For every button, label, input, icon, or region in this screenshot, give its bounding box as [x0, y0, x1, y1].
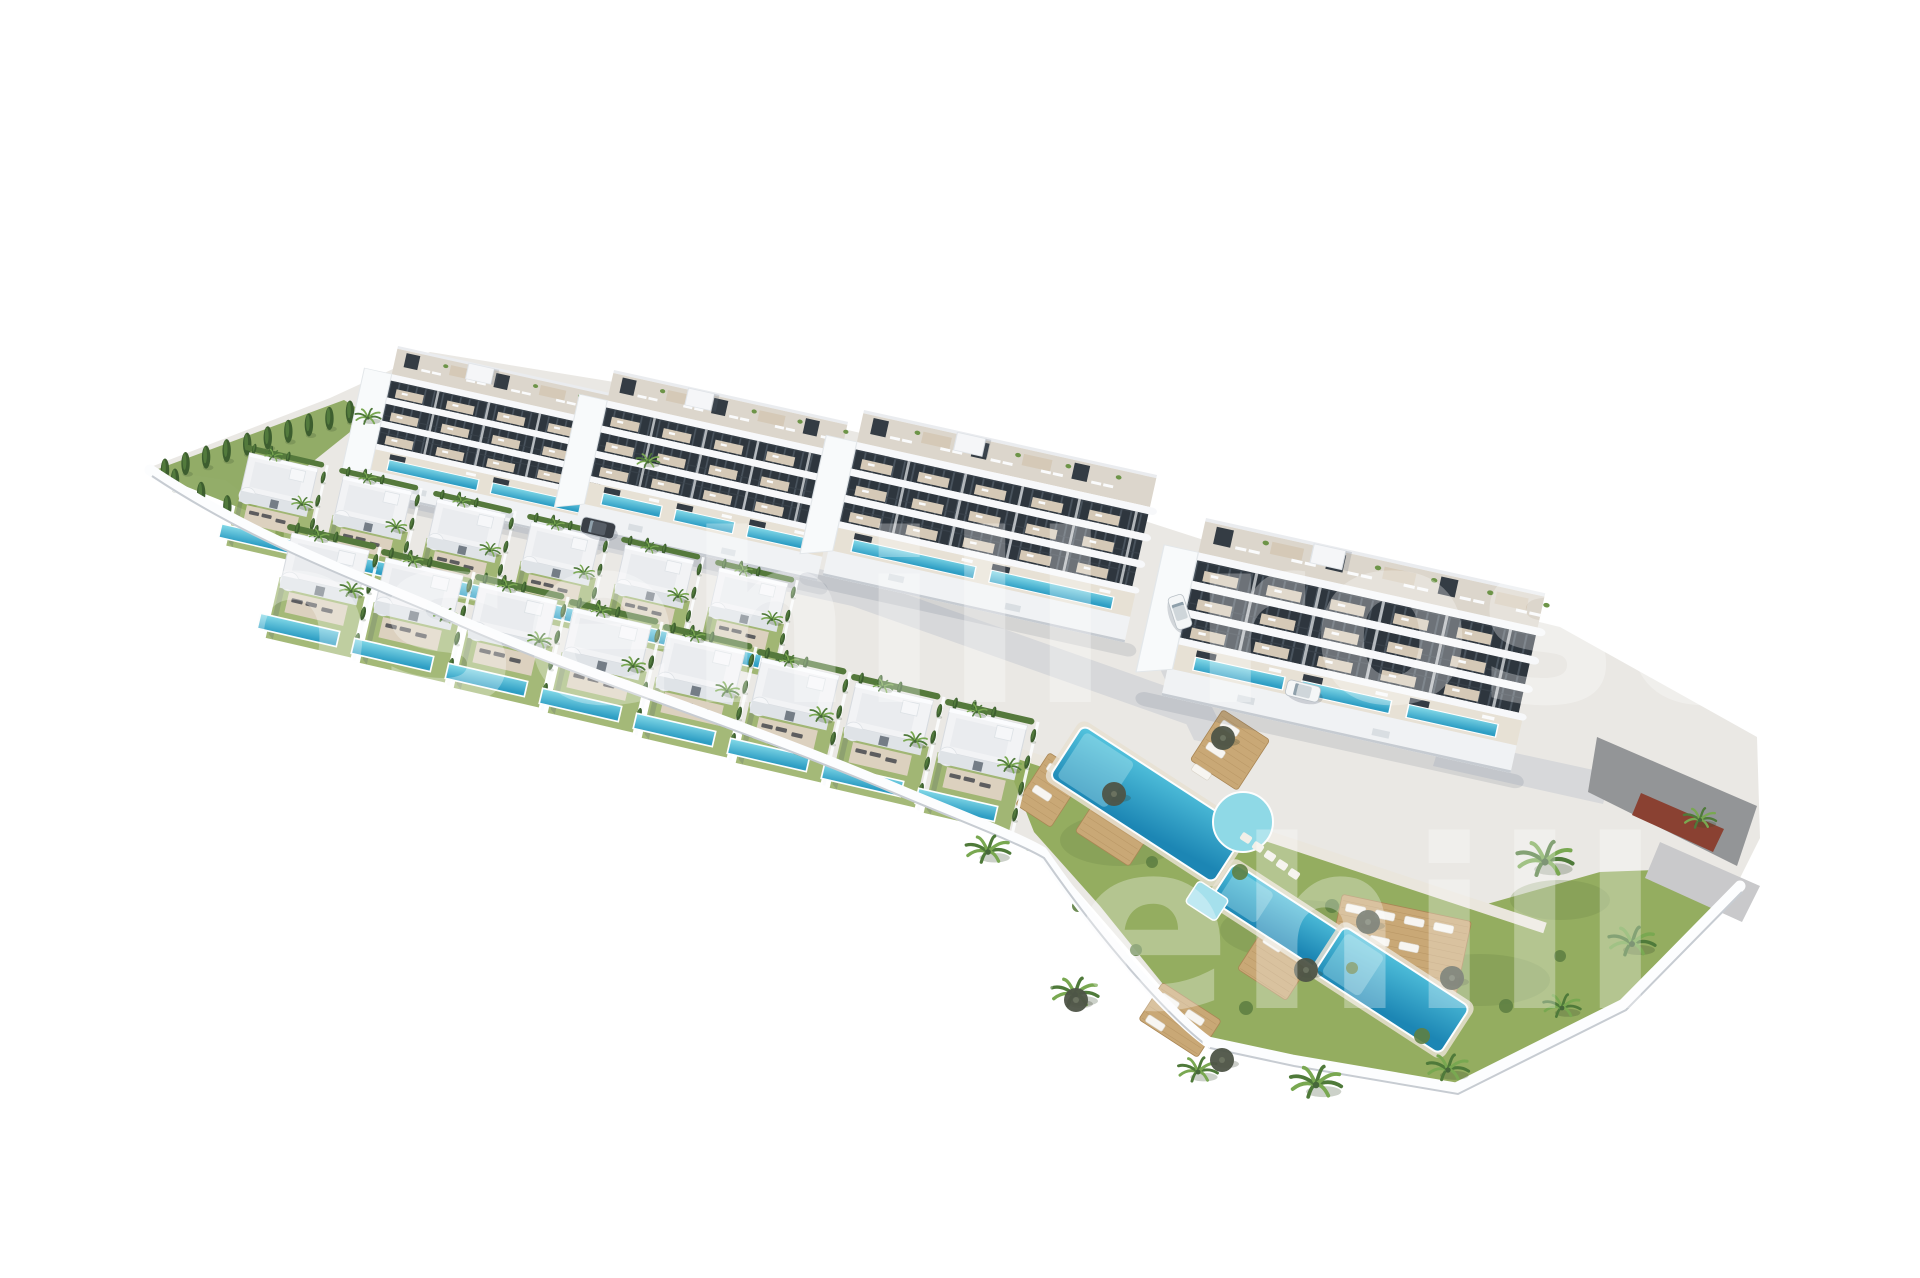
watermark-text: rosehill: [640, 791, 1666, 1064]
watermark-text: rosehill: [1190, 485, 1920, 758]
watermark-text: rosehill: [90, 485, 1116, 758]
aerial-property-render: rosehillrosehillrosehill: [0, 0, 1920, 1278]
render-canvas: rosehillrosehillrosehill: [0, 0, 1920, 1278]
